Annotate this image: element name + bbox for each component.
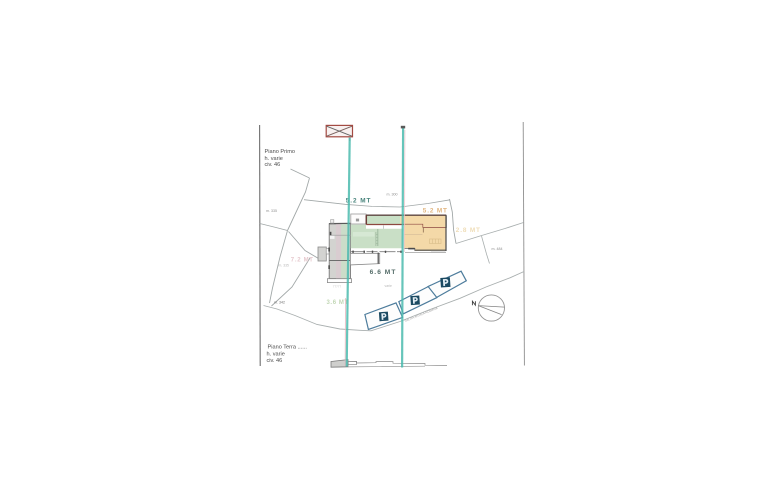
svg-text:m. 484: m. 484 <box>492 247 503 251</box>
svg-text:civ. 46: civ. 46 <box>267 358 283 364</box>
svg-text:varie: varie <box>385 284 392 288</box>
svg-text:77777: 77777 <box>333 285 342 289</box>
svg-text:m. 335: m. 335 <box>266 209 277 213</box>
svg-text:Piano Primo: Piano Primo <box>265 149 295 155</box>
svg-text:m. 342: m. 342 <box>274 301 285 305</box>
svg-text:2.8 MT: 2.8 MT <box>456 227 481 234</box>
svg-text:5.2 MT: 5.2 MT <box>423 207 448 214</box>
svg-text:m. 335: m. 335 <box>279 263 289 267</box>
svg-text:m. 300: m. 300 <box>387 193 398 197</box>
svg-text:civ. 46: civ. 46 <box>265 162 281 168</box>
svg-text:6.6 MT: 6.6 MT <box>370 269 397 276</box>
svg-text:7.2 MT: 7.2 MT <box>291 258 314 264</box>
svg-text:h. varie: h. varie <box>265 156 283 162</box>
svg-text:Piano Terra ......: Piano Terra ...... <box>268 345 308 351</box>
svg-text:h. varie: h. varie <box>267 352 285 358</box>
